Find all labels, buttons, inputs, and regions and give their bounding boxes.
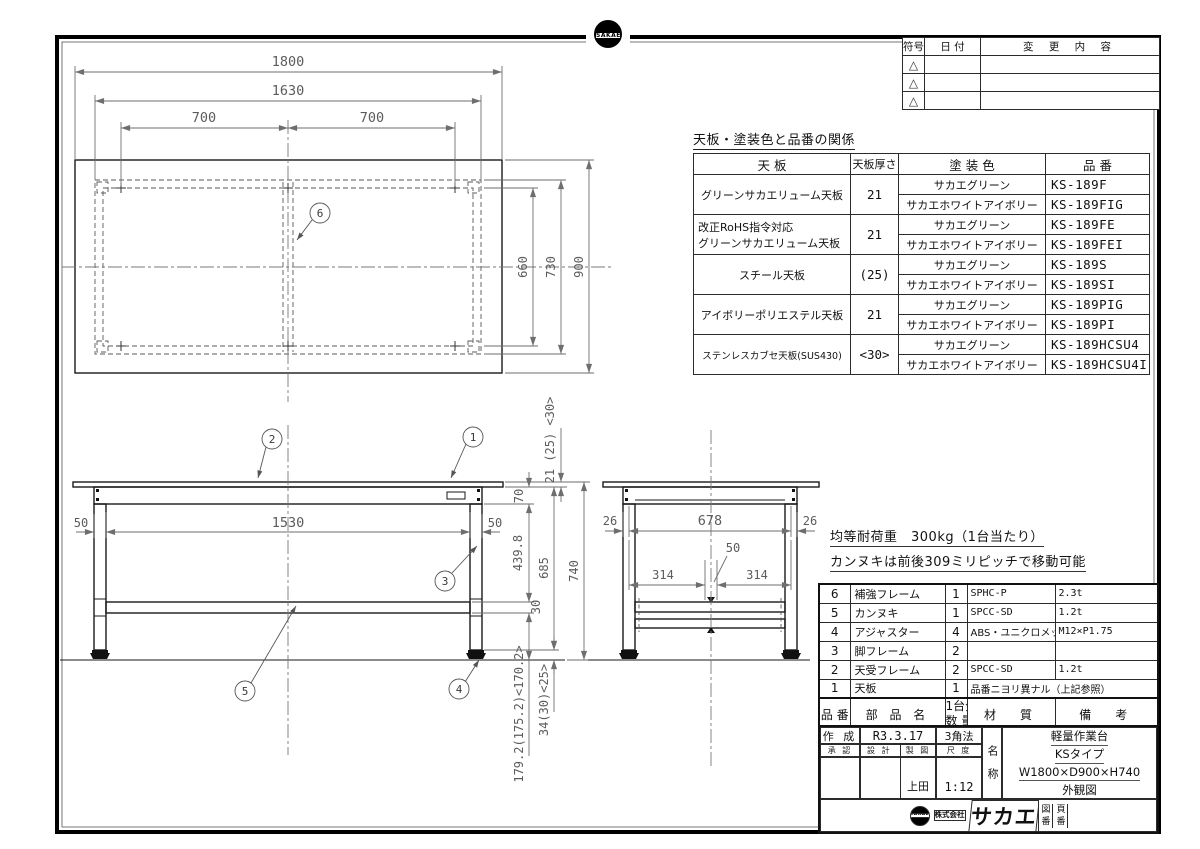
draft-value-cell: 上田 xyxy=(901,758,935,798)
part-remarks-cell: M12×P1.75 xyxy=(1055,622,1158,641)
created-label: 作 成 xyxy=(820,727,860,744)
revision-change-cell xyxy=(981,74,1160,92)
product-thickness: (25) xyxy=(851,255,899,295)
product-top-name-line2: グリーンサカエリューム天板 xyxy=(698,235,850,251)
product-color: サカエホワイトアイボリー xyxy=(899,275,1046,295)
front-view-dim-labels: 50 1530 50 70 439.8 30 685 740 21 (25) <… xyxy=(74,397,581,783)
dim-pitch-left: 700 xyxy=(192,110,216,126)
part-remarks-cell: 1.2t xyxy=(1055,603,1158,622)
part-name-cell: 天受フレーム xyxy=(850,660,945,679)
part-remarks-cell: 1.2t xyxy=(1055,660,1158,679)
product-top-name: グリーンサカエリューム天板 xyxy=(694,175,851,215)
dim-height: 740 xyxy=(567,560,581,582)
revision-change-cell xyxy=(981,92,1160,110)
part-name-cell: 天板 xyxy=(850,679,945,698)
product-part-no: KS-189FE xyxy=(1046,215,1150,235)
product-color: サカエグリーン xyxy=(899,255,1046,275)
title-block-bottom-row: SAKAE 株式 会社 サカエ 図番 頁番 xyxy=(820,799,1157,832)
product-header-thickness: 天板厚さ xyxy=(851,154,899,175)
revision-date-cell xyxy=(925,56,981,74)
part-qty-cell: 2 xyxy=(945,641,967,660)
sakae-logo-text: SAKAE xyxy=(910,813,930,818)
product-part-no: KS-189FEI xyxy=(1046,235,1150,255)
part-material-cell: SPHC-P xyxy=(967,584,1055,603)
product-color: サカエホワイトアイボリー xyxy=(899,355,1046,375)
part-no-cell: 6 xyxy=(819,584,850,603)
part-material-cell: 品番ニヨリ異ナル（上記参照） xyxy=(967,679,1158,698)
product-header-color: 塗 装 色 xyxy=(899,154,1046,175)
dim-pitch-right: 700 xyxy=(360,110,384,126)
balloon-1: 1 xyxy=(470,431,477,444)
revision-date-cell xyxy=(925,92,981,110)
revision-triangle-icon: △ xyxy=(903,92,925,110)
product-color: サカエグリーン xyxy=(899,175,1046,195)
dim-inner-span: 678 xyxy=(698,513,722,529)
product-row: スチール天板 (25) サカエグリーン KS-189S xyxy=(694,255,1150,275)
page-no-label: 頁番 xyxy=(1054,804,1068,828)
product-table-title: 天板・塗装色と品番の関係 xyxy=(693,129,855,150)
company-logo: SAKAE 株式 会社 サカエ xyxy=(910,800,1039,832)
dim-frame-depth: 730 xyxy=(544,256,558,278)
projection-method: 3角法 xyxy=(936,727,982,744)
part-qty-cell: 1 xyxy=(945,603,967,622)
part-name-cell: 脚フレーム xyxy=(850,641,945,660)
sakae-logo-badge: SAKAE xyxy=(586,15,630,53)
sakae-logo-text: SAKAE xyxy=(596,32,620,39)
dim-rail-height: 30 xyxy=(529,600,543,614)
part-qty-cell: 1 xyxy=(945,584,967,603)
product-name-line: 軽量作業台 xyxy=(1051,728,1109,746)
draft-label: 製 図 xyxy=(900,744,936,757)
design-value-cell xyxy=(861,758,901,798)
product-row: ステンレスカブセ天板(SUS430) <30> サカエグリーン KS-189HC… xyxy=(694,335,1150,355)
top-view-dimensions xyxy=(75,66,594,373)
product-thickness: 21 xyxy=(851,175,899,215)
part-name-cell: アジャスター xyxy=(850,622,945,641)
load-capacity-note: 均等耐荷重 300kg（1台当たり） xyxy=(830,526,1044,547)
revision-row: △ xyxy=(903,56,1160,74)
dim-lower-clearance: 179.2(175.2)<170.2> xyxy=(512,645,526,782)
company-prefix-top: 株式 xyxy=(935,811,950,819)
part-balloons: 6 1 2 3 4 5 xyxy=(235,203,483,701)
product-part-no: KS-189HCSU4 xyxy=(1046,335,1150,355)
parts-row: 2 天受フレーム 2 SPCC-SD 1.2t xyxy=(819,660,1158,679)
product-row: グリーンサカエリューム天板 21 サカエグリーン KS-189F xyxy=(694,175,1150,195)
drawing-no-label: 図番 xyxy=(1039,804,1053,828)
approve-value-cell xyxy=(820,757,860,799)
product-color: サカエグリーン xyxy=(899,215,1046,235)
revision-header-date: 日 付 xyxy=(925,38,981,56)
parts-row: 3 脚フレーム 2 xyxy=(819,641,1158,660)
parts-row: 1 天板 1 品番ニヨリ異ナル（上記参照） xyxy=(819,679,1158,698)
product-top-name: アイボリーポリエステル天板 xyxy=(694,295,851,335)
top-view-dim-labels: 1800 1630 700 700 660 730 900 xyxy=(192,54,586,278)
dim-offset-left: 26 xyxy=(603,514,617,528)
product-name-cell: 軽量作業台 KSタイプ W1800×D900×H740 外観図 xyxy=(1002,727,1157,799)
part-material-cell: SPCC-SD xyxy=(967,603,1055,622)
front-view xyxy=(60,425,565,755)
scale-label: 尺 度 xyxy=(936,744,982,757)
part-material-cell xyxy=(967,641,1055,660)
product-part-no: KS-189S xyxy=(1046,255,1150,275)
dim-foot-range: 34(30)<25> xyxy=(537,664,551,736)
revision-triangle-icon: △ xyxy=(903,56,925,74)
revision-triangle-icon: △ xyxy=(903,74,925,92)
dim-top-thickness: 21 (25) <30> xyxy=(543,397,557,484)
product-part-no: KS-189F xyxy=(1046,175,1150,195)
spec-notes: 均等耐荷重 300kg（1台当たり） カンヌキは前後309ミリピッチで移動可能 xyxy=(830,526,1086,576)
product-row: 改正RoHS指令対応 グリーンサカエリューム天板 21 サカエグリーン KS-1… xyxy=(694,215,1150,235)
product-header-top: 天 板 xyxy=(694,154,851,175)
product-top-name: ステンレスカブセ天板(SUS430) xyxy=(694,335,851,375)
dim-frame-width: 1630 xyxy=(272,83,305,99)
product-color: サカエホワイトアイボリー xyxy=(899,195,1046,215)
revision-row: △ xyxy=(903,92,1160,110)
product-top-name: 改正RoHS指令対応 グリーンサカエリューム天板 xyxy=(694,215,851,255)
part-name-cell: 補強フレーム xyxy=(850,584,945,603)
approve-label: 承 認 xyxy=(820,744,860,757)
product-name-line: W1800×D900×H740 xyxy=(1019,764,1140,782)
product-row: アイボリーポリエステル天板 21 サカエグリーン KS-189PIG xyxy=(694,295,1150,315)
balloon-2: 2 xyxy=(269,433,276,446)
dim-rail-pitch-right: 314 xyxy=(746,568,768,582)
side-view xyxy=(588,430,819,768)
dim-top-width: 1800 xyxy=(272,54,305,70)
company-prefix: 株式 会社 xyxy=(934,810,966,820)
balloon-6: 6 xyxy=(317,207,324,220)
product-part-no: KS-189HCSU4I xyxy=(1046,355,1150,375)
part-qty-cell: 4 xyxy=(945,622,967,641)
part-no-cell: 2 xyxy=(819,660,850,679)
rail-pitch-note: カンヌキは前後309ミリピッチで移動可能 xyxy=(830,551,1086,572)
product-thickness: 21 xyxy=(851,295,899,335)
product-thickness: <30> xyxy=(851,335,899,375)
dim-depth: 900 xyxy=(572,256,586,278)
product-header-partno: 品 番 xyxy=(1046,154,1150,175)
product-part-no: KS-189FIG xyxy=(1046,195,1150,215)
product-part-no: KS-189SI xyxy=(1046,275,1150,295)
part-no-cell: 3 xyxy=(819,641,850,660)
revision-date-cell xyxy=(925,74,981,92)
product-name-line: KSタイプ xyxy=(1055,746,1104,764)
revision-change-cell xyxy=(981,56,1160,74)
dim-leg-width-right: 50 xyxy=(488,516,502,530)
product-color: サカエホワイトアイボリー xyxy=(899,235,1046,255)
revision-row: △ xyxy=(903,74,1160,92)
dim-leg-width-left: 50 xyxy=(74,516,88,530)
product-color: サカエグリーン xyxy=(899,295,1046,315)
sakae-logo-icon: SAKAE xyxy=(910,806,930,826)
product-part-no: KS-189PI xyxy=(1046,315,1150,335)
sakae-logo-icon: SAKAE xyxy=(594,20,622,48)
product-color: サカエグリーン xyxy=(899,335,1046,355)
drawing-sheet: { "colors": { "line":"#1a1a1a", "dim":"#… xyxy=(0,0,1200,849)
balloon-5: 5 xyxy=(242,685,249,698)
dim-rail-width: 50 xyxy=(726,541,740,555)
part-no-cell: 4 xyxy=(819,622,850,641)
dim-rail-drop: 439.8 xyxy=(511,535,525,571)
product-top-name-line1: 改正RoHS指令対応 xyxy=(698,219,850,235)
company-name: サカエ xyxy=(968,800,1039,832)
dim-offset-right: 26 xyxy=(803,514,817,528)
part-no-cell: 5 xyxy=(819,603,850,622)
product-thickness: 21 xyxy=(851,215,899,255)
created-date: R3.3.17 xyxy=(860,727,936,744)
product-part-no: KS-189PIG xyxy=(1046,295,1150,315)
title-block: 作 成 R3.3.17 3角法 承 認 設 計 製 図 尺 度 上田 1:12 … xyxy=(818,725,1159,834)
company-prefix-bottom: 会社 xyxy=(950,811,965,819)
product-header-row: 天 板 天板厚さ 塗 装 色 品 番 xyxy=(694,154,1150,175)
part-remarks-cell: 2.3t xyxy=(1055,584,1158,603)
parts-header-qty-top: 1台分 xyxy=(946,699,967,714)
parts-row: 4 アジャスター 4 ABS・ユニクロメッキ M12×P1.75 xyxy=(819,622,1158,641)
scale-value: 1:12 xyxy=(936,757,982,799)
part-qty-cell: 1 xyxy=(945,679,967,698)
product-name-line: 外観図 xyxy=(1062,781,1097,798)
product-color: サカエホワイトアイボリー xyxy=(899,315,1046,335)
part-name-cell: カンヌキ xyxy=(850,603,945,622)
dim-leg-span: 1530 xyxy=(272,515,305,531)
product-top-name: スチール天板 xyxy=(694,255,851,295)
revision-table: 符号 日 付 変 更 内 容 △ △ △ xyxy=(902,37,1160,110)
product-table-section: 天板・塗装色と品番の関係 天 板 天板厚さ 塗 装 色 品 番 グリーンサカエリ… xyxy=(693,129,1150,375)
revision-header-mark: 符号 xyxy=(903,38,925,56)
revision-header-row: 符号 日 付 変 更 内 容 xyxy=(903,38,1160,56)
dim-inner-depth: 660 xyxy=(516,256,530,278)
part-no-cell: 1 xyxy=(819,679,850,698)
part-qty-cell: 2 xyxy=(945,660,967,679)
parts-row: 6 補強フレーム 1 SPHC-P 2.3t xyxy=(819,584,1158,603)
dim-rail-pitch-left: 314 xyxy=(652,568,674,582)
dim-underside-height: 685 xyxy=(537,557,551,579)
product-table: 天 板 天板厚さ 塗 装 色 品 番 グリーンサカエリューム天板 21 サカエグ… xyxy=(693,153,1150,375)
part-remarks-cell xyxy=(1055,641,1158,660)
balloon-3: 3 xyxy=(442,575,449,588)
part-material-cell: ABS・ユニクロメッキ xyxy=(967,622,1055,641)
balloon-4: 4 xyxy=(456,683,463,696)
parts-list-table: 6 補強フレーム 1 SPHC-P 2.3t 5 カンヌキ 1 SPCC-SD … xyxy=(818,583,1159,731)
part-material-cell: SPCC-SD xyxy=(967,660,1055,679)
revision-header-change: 変 更 内 容 xyxy=(981,38,1160,56)
parts-row: 5 カンヌキ 1 SPCC-SD 1.2t xyxy=(819,603,1158,622)
dim-apron-height: 70 xyxy=(512,489,526,503)
name-label: 名称 xyxy=(982,727,1002,799)
